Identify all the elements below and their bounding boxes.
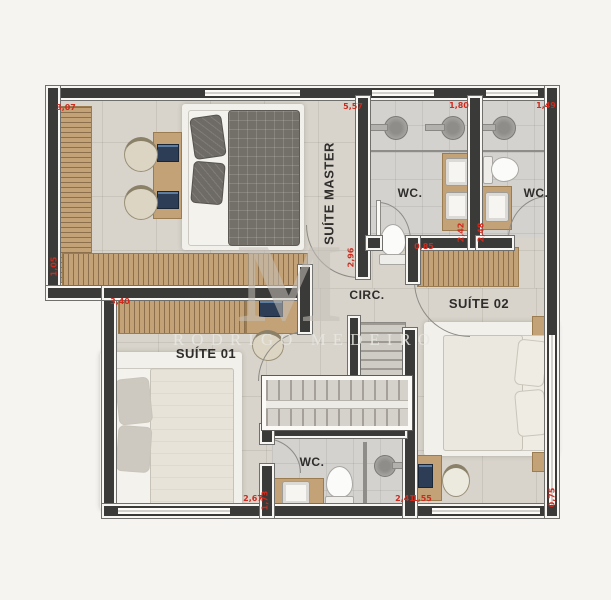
laptop-icon [157, 144, 179, 162]
dimension-label: 2,48 [477, 223, 486, 243]
shower-arm [481, 124, 496, 131]
wall [368, 238, 380, 248]
window [372, 90, 434, 96]
door-leaf [376, 200, 381, 242]
dimension-label: 1,55 [411, 494, 433, 503]
dimension-label: 2,42 [457, 223, 466, 243]
wall [50, 88, 557, 98]
pillow [190, 161, 226, 206]
pillow [115, 376, 154, 425]
dimension-label: 3,40 [109, 297, 131, 306]
wardrobe-suite01 [118, 298, 246, 334]
stairs-lower-flight [262, 376, 412, 430]
dimension-label: 5,57 [342, 102, 364, 111]
floor-plan: SUÍTE MASTER WC. WC. CIRC. SUÍTE 01 SUÍT… [0, 0, 611, 600]
office-chair [124, 137, 158, 172]
pillow [514, 389, 548, 437]
pillow [189, 114, 227, 160]
sink-icon [282, 481, 310, 505]
wall [104, 288, 310, 298]
room-label-wc-suite02: WC. [522, 186, 550, 200]
toilet-tank [379, 254, 407, 265]
toilet-icon [326, 466, 353, 498]
dimension-label: 1,80 [448, 101, 470, 110]
laptop-icon [259, 300, 283, 317]
shower-arm [425, 124, 445, 131]
stairs-upper-flight [358, 322, 406, 380]
room-label-suite01: SUÍTE 01 [146, 346, 266, 361]
room-label-wc-master: WC. [396, 186, 424, 200]
laptop-icon [418, 464, 433, 488]
room-label-suite-master: SUÍTE MASTER [322, 134, 337, 254]
room-label-circ: CIRC. [337, 288, 397, 302]
stairs-landing [266, 400, 408, 409]
shower-arm [368, 124, 388, 131]
sink-icon [445, 192, 469, 220]
room-label-wc-suite01: WC. [298, 455, 326, 469]
dimension-label: 3,07 [55, 103, 77, 112]
dimension-label: 1,49 [535, 101, 557, 110]
room-label-suite02: SUÍTE 02 [419, 296, 539, 311]
duvet-suite01 [150, 368, 234, 510]
duvet-suite02 [443, 335, 523, 451]
desk-chair [442, 464, 470, 497]
dimension-label: 0,85 [413, 242, 435, 251]
window [486, 90, 538, 96]
dimension-label: 1,05 [50, 257, 59, 277]
pillow [115, 425, 152, 473]
window [549, 335, 555, 505]
shower-glass-line [368, 150, 547, 152]
wall [358, 98, 368, 277]
wardrobe-master-bottom [62, 253, 308, 287]
shower-glass-partition [363, 442, 367, 512]
wall [300, 267, 310, 332]
window [432, 508, 540, 514]
sink-icon [485, 192, 509, 222]
wall [350, 318, 358, 380]
sink-icon [445, 158, 469, 186]
pillow [514, 339, 549, 388]
dimension-label: 2,96 [347, 248, 356, 268]
window [205, 90, 300, 96]
wall [104, 288, 114, 516]
dimension-label: 0,75 [548, 488, 557, 508]
window [118, 508, 230, 514]
laptop-icon [157, 191, 179, 209]
duvet-master [228, 110, 300, 246]
office-chair [124, 185, 158, 220]
dimension-label: 1,73 [261, 491, 270, 511]
